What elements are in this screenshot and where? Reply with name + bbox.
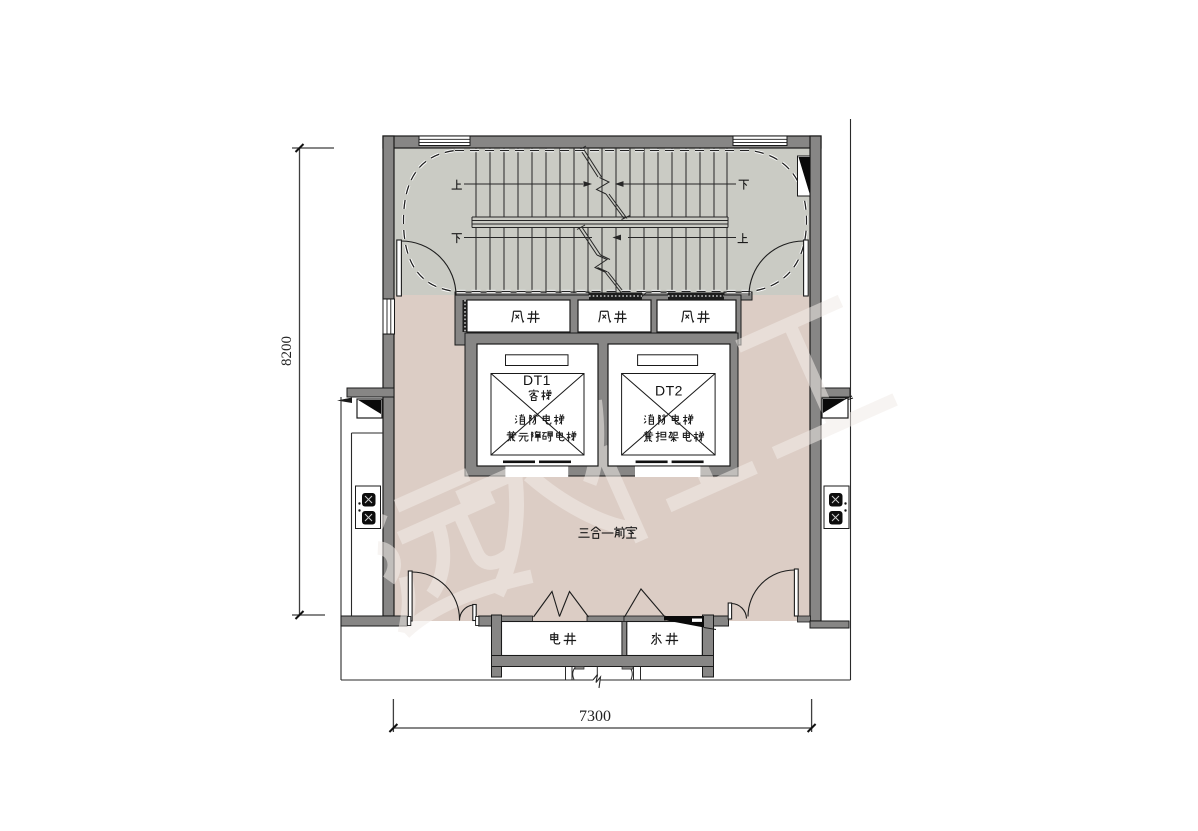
svg-text:7300: 7300 [579, 708, 611, 725]
svg-text:DT1: DT1 [523, 372, 551, 388]
svg-text:DT2: DT2 [655, 383, 683, 399]
svg-text:8200: 8200 [279, 336, 295, 366]
